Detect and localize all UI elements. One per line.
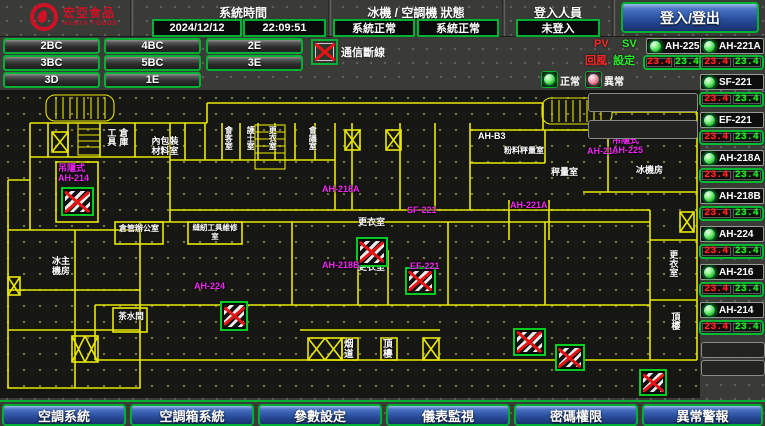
header-bar: 宏亞食品 HUNYA FOODS 系統時間 2024/12/12 22:09:5…	[0, 0, 765, 37]
header-separator	[328, 0, 332, 36]
setpoint-label: 設定	[613, 52, 635, 68]
ahu-marker-label: AH-218B	[322, 261, 360, 270]
nav-ahu-system[interactable]: 空調箱系統	[130, 404, 254, 426]
unit-values: 23.423.4	[699, 92, 764, 107]
room-label: 秤量室	[551, 167, 578, 177]
pv-value: 23.4	[702, 95, 731, 104]
unit-values: 23.423.4	[699, 168, 764, 183]
comm-broken-label: 通信斷線	[341, 44, 385, 60]
room-label: 冰機房	[636, 165, 663, 175]
status-led	[703, 190, 716, 203]
room-label: 工具	[106, 128, 116, 146]
sv-value: 23.4	[733, 171, 762, 180]
empty-unit-slot	[701, 342, 765, 358]
unit-ah216[interactable]: AH-216	[700, 264, 764, 280]
brand-logo-icon	[30, 3, 58, 31]
room-label: 倉庫	[118, 128, 128, 146]
pv-value: 23.4	[702, 58, 731, 67]
brand-name-en: HUNYA FOODS	[63, 21, 118, 27]
header-separator	[130, 0, 134, 36]
room-label: 內包裝材料室	[148, 136, 182, 157]
empty-unit-slot	[588, 120, 698, 139]
room-label: 烟道	[344, 340, 356, 360]
status-led	[703, 304, 716, 317]
brand-logo: 宏亞食品 HUNYA FOODS	[30, 3, 118, 31]
header-separator	[612, 0, 616, 36]
room-label: 粉料秤量室	[504, 146, 544, 155]
unit-name-label: AH-225	[665, 41, 699, 52]
login-user-value: 未登入	[516, 19, 600, 37]
ahu-marker-label: AH-225	[612, 146, 643, 155]
sv-value: 23.4	[733, 58, 762, 67]
ahu-marker-label: AH-221A	[510, 201, 548, 210]
floor-button-4bc[interactable]: 4BC	[104, 38, 201, 54]
ahu-marker-label: EF-221	[410, 262, 440, 271]
legend-abnormal-led	[585, 71, 602, 88]
hmi-screen: 工具 倉庫 內包裝材料室 會客室 護士室 更衣室 會議室 AH-B3 粉料秤量室…	[0, 0, 765, 426]
floor-button-2e[interactable]: 2E	[206, 38, 303, 54]
status-led	[649, 40, 662, 53]
nav-parameter-settings[interactable]: 參數設定	[258, 404, 382, 426]
unit-name-label: AH-224	[719, 229, 753, 240]
room-label: 更衣室	[268, 126, 277, 150]
unit-ah221a[interactable]: AH-221A	[700, 38, 764, 54]
floor-button-2bc[interactable]: 2BC	[3, 38, 100, 54]
ahu-marker-label: SF-221	[407, 206, 437, 215]
pv-column-header: PV	[594, 38, 609, 50]
footer-nav: 空調系統 空調箱系統 參數設定 儀表監視 密碼權限 異常警報	[0, 400, 765, 426]
room-label: 護士室	[246, 126, 255, 150]
pv-value: 23.4	[646, 58, 672, 67]
room-label: 更衣室	[668, 250, 678, 277]
unit-ef221[interactable]: EF-221	[700, 112, 764, 128]
sv-value: 23.4	[733, 133, 762, 142]
return-air-label: 回風	[585, 52, 607, 68]
room-label: 頂樓	[670, 312, 680, 330]
unit-ah224[interactable]: AH-224	[700, 226, 764, 242]
unit-ah218b[interactable]: AH-218B	[700, 188, 764, 204]
unit-values: 23.423.4	[699, 282, 764, 297]
room-label: 茶水間	[116, 312, 146, 322]
unit-ah214[interactable]: AH-214	[700, 302, 764, 318]
unit-name-label: AH-218B	[719, 191, 761, 202]
nav-ac-system[interactable]: 空調系統	[2, 404, 126, 426]
shaft-x-icons	[8, 130, 694, 362]
comm-broken-icon	[311, 39, 338, 65]
ahu-marker-ah216[interactable]	[555, 344, 585, 371]
legend-abnormal-label: 異常	[604, 73, 624, 88]
status-led	[703, 114, 716, 127]
unit-values: 23.423.4	[699, 244, 764, 259]
sv-value: 23.4	[733, 95, 762, 104]
room-label: 會議室	[308, 126, 317, 150]
room-label: 更衣室	[358, 217, 385, 227]
unit-values: 23.423.4	[699, 130, 764, 145]
nav-password-rights[interactable]: 密碼權限	[514, 404, 638, 426]
sv-value: 23.4	[733, 323, 762, 332]
room-label: 縫紉工具維修室	[190, 224, 240, 241]
empty-unit-slot	[701, 360, 765, 376]
nav-abnormal-alarm[interactable]: 異常警報	[642, 404, 763, 426]
sv-value: 23.4	[674, 58, 700, 67]
ahu-marker-ah218a[interactable]	[356, 237, 388, 267]
unit-values: 23.423.4	[699, 206, 764, 221]
sv-column-header: SV	[622, 38, 637, 50]
room-label: 頂樓	[383, 340, 395, 360]
system-time-value: 22:09:51	[243, 19, 326, 37]
ahu-marker-label: AH-224	[194, 282, 225, 291]
ahu-marker-label: AH-218A	[322, 185, 360, 194]
ahu-marker-label: AH-214	[58, 174, 89, 183]
unit-name-label: EF-221	[719, 115, 752, 126]
unit-values: 23.423.4	[699, 320, 764, 335]
unit-ah218a[interactable]: AH-218A	[700, 150, 764, 166]
pv-value: 23.4	[702, 171, 731, 180]
empty-unit-slot	[588, 93, 698, 112]
unit-name-label: AH-214	[719, 305, 753, 316]
header-separator	[502, 0, 506, 36]
legend-normal-led	[541, 71, 558, 88]
pv-value: 23.4	[702, 247, 731, 256]
pv-value: 23.4	[702, 133, 731, 142]
status-led	[703, 76, 716, 89]
room-label: 會客室	[224, 126, 233, 150]
status-led	[703, 228, 716, 241]
nav-meter-monitor[interactable]: 儀表監視	[386, 404, 510, 426]
floor-button-3e[interactable]: 3E	[206, 55, 303, 71]
pv-value: 23.4	[702, 285, 731, 294]
sv-value: 23.4	[733, 247, 762, 256]
unit-ah225[interactable]: AH-225	[646, 38, 702, 54]
chiller-status-value: 系統正常	[333, 19, 415, 37]
room-label: AH-B3	[478, 131, 506, 141]
ahu-marker-ah214[interactable]	[61, 187, 94, 216]
unit-values: 23.4 23.4	[643, 55, 703, 70]
brand-name: 宏亞食品	[63, 7, 118, 19]
unit-name-label: AH-218A	[719, 153, 761, 164]
floor-button-1e[interactable]: 1E	[104, 72, 201, 88]
unit-sf221[interactable]: SF-221	[700, 74, 764, 90]
unit-values: 23.423.4	[699, 55, 764, 70]
login-logout-button[interactable]: 登入/登出	[621, 2, 759, 33]
unit-name-label: AH-221A	[719, 41, 761, 52]
floor-button-3bc[interactable]: 3BC	[3, 55, 100, 71]
system-date-value: 2024/12/12	[152, 19, 242, 37]
room-label: 冰主機房	[50, 256, 72, 277]
stairs-icons	[46, 95, 612, 169]
floor-button-3d[interactable]: 3D	[3, 72, 100, 88]
pv-value: 23.4	[702, 209, 731, 218]
ahu-status-value: 系統正常	[417, 19, 499, 37]
ahu-marker-ah224[interactable]	[220, 301, 248, 331]
unit-name-label: AH-216	[719, 267, 753, 278]
room-label: 倉管辦公室	[117, 224, 161, 233]
unit-name-label: SF-221	[719, 77, 752, 88]
pv-value: 23.4	[702, 323, 731, 332]
sv-value: 23.4	[733, 209, 762, 218]
ahu-marker-ah225[interactable]	[639, 369, 667, 396]
sv-value: 23.4	[733, 285, 762, 294]
legend-normal-label: 正常	[560, 73, 580, 88]
status-led	[703, 40, 716, 53]
floor-button-5bc[interactable]: 5BC	[104, 55, 201, 71]
status-led	[703, 266, 716, 279]
ahu-marker-ah221a[interactable]	[513, 328, 546, 356]
status-led	[703, 152, 716, 165]
